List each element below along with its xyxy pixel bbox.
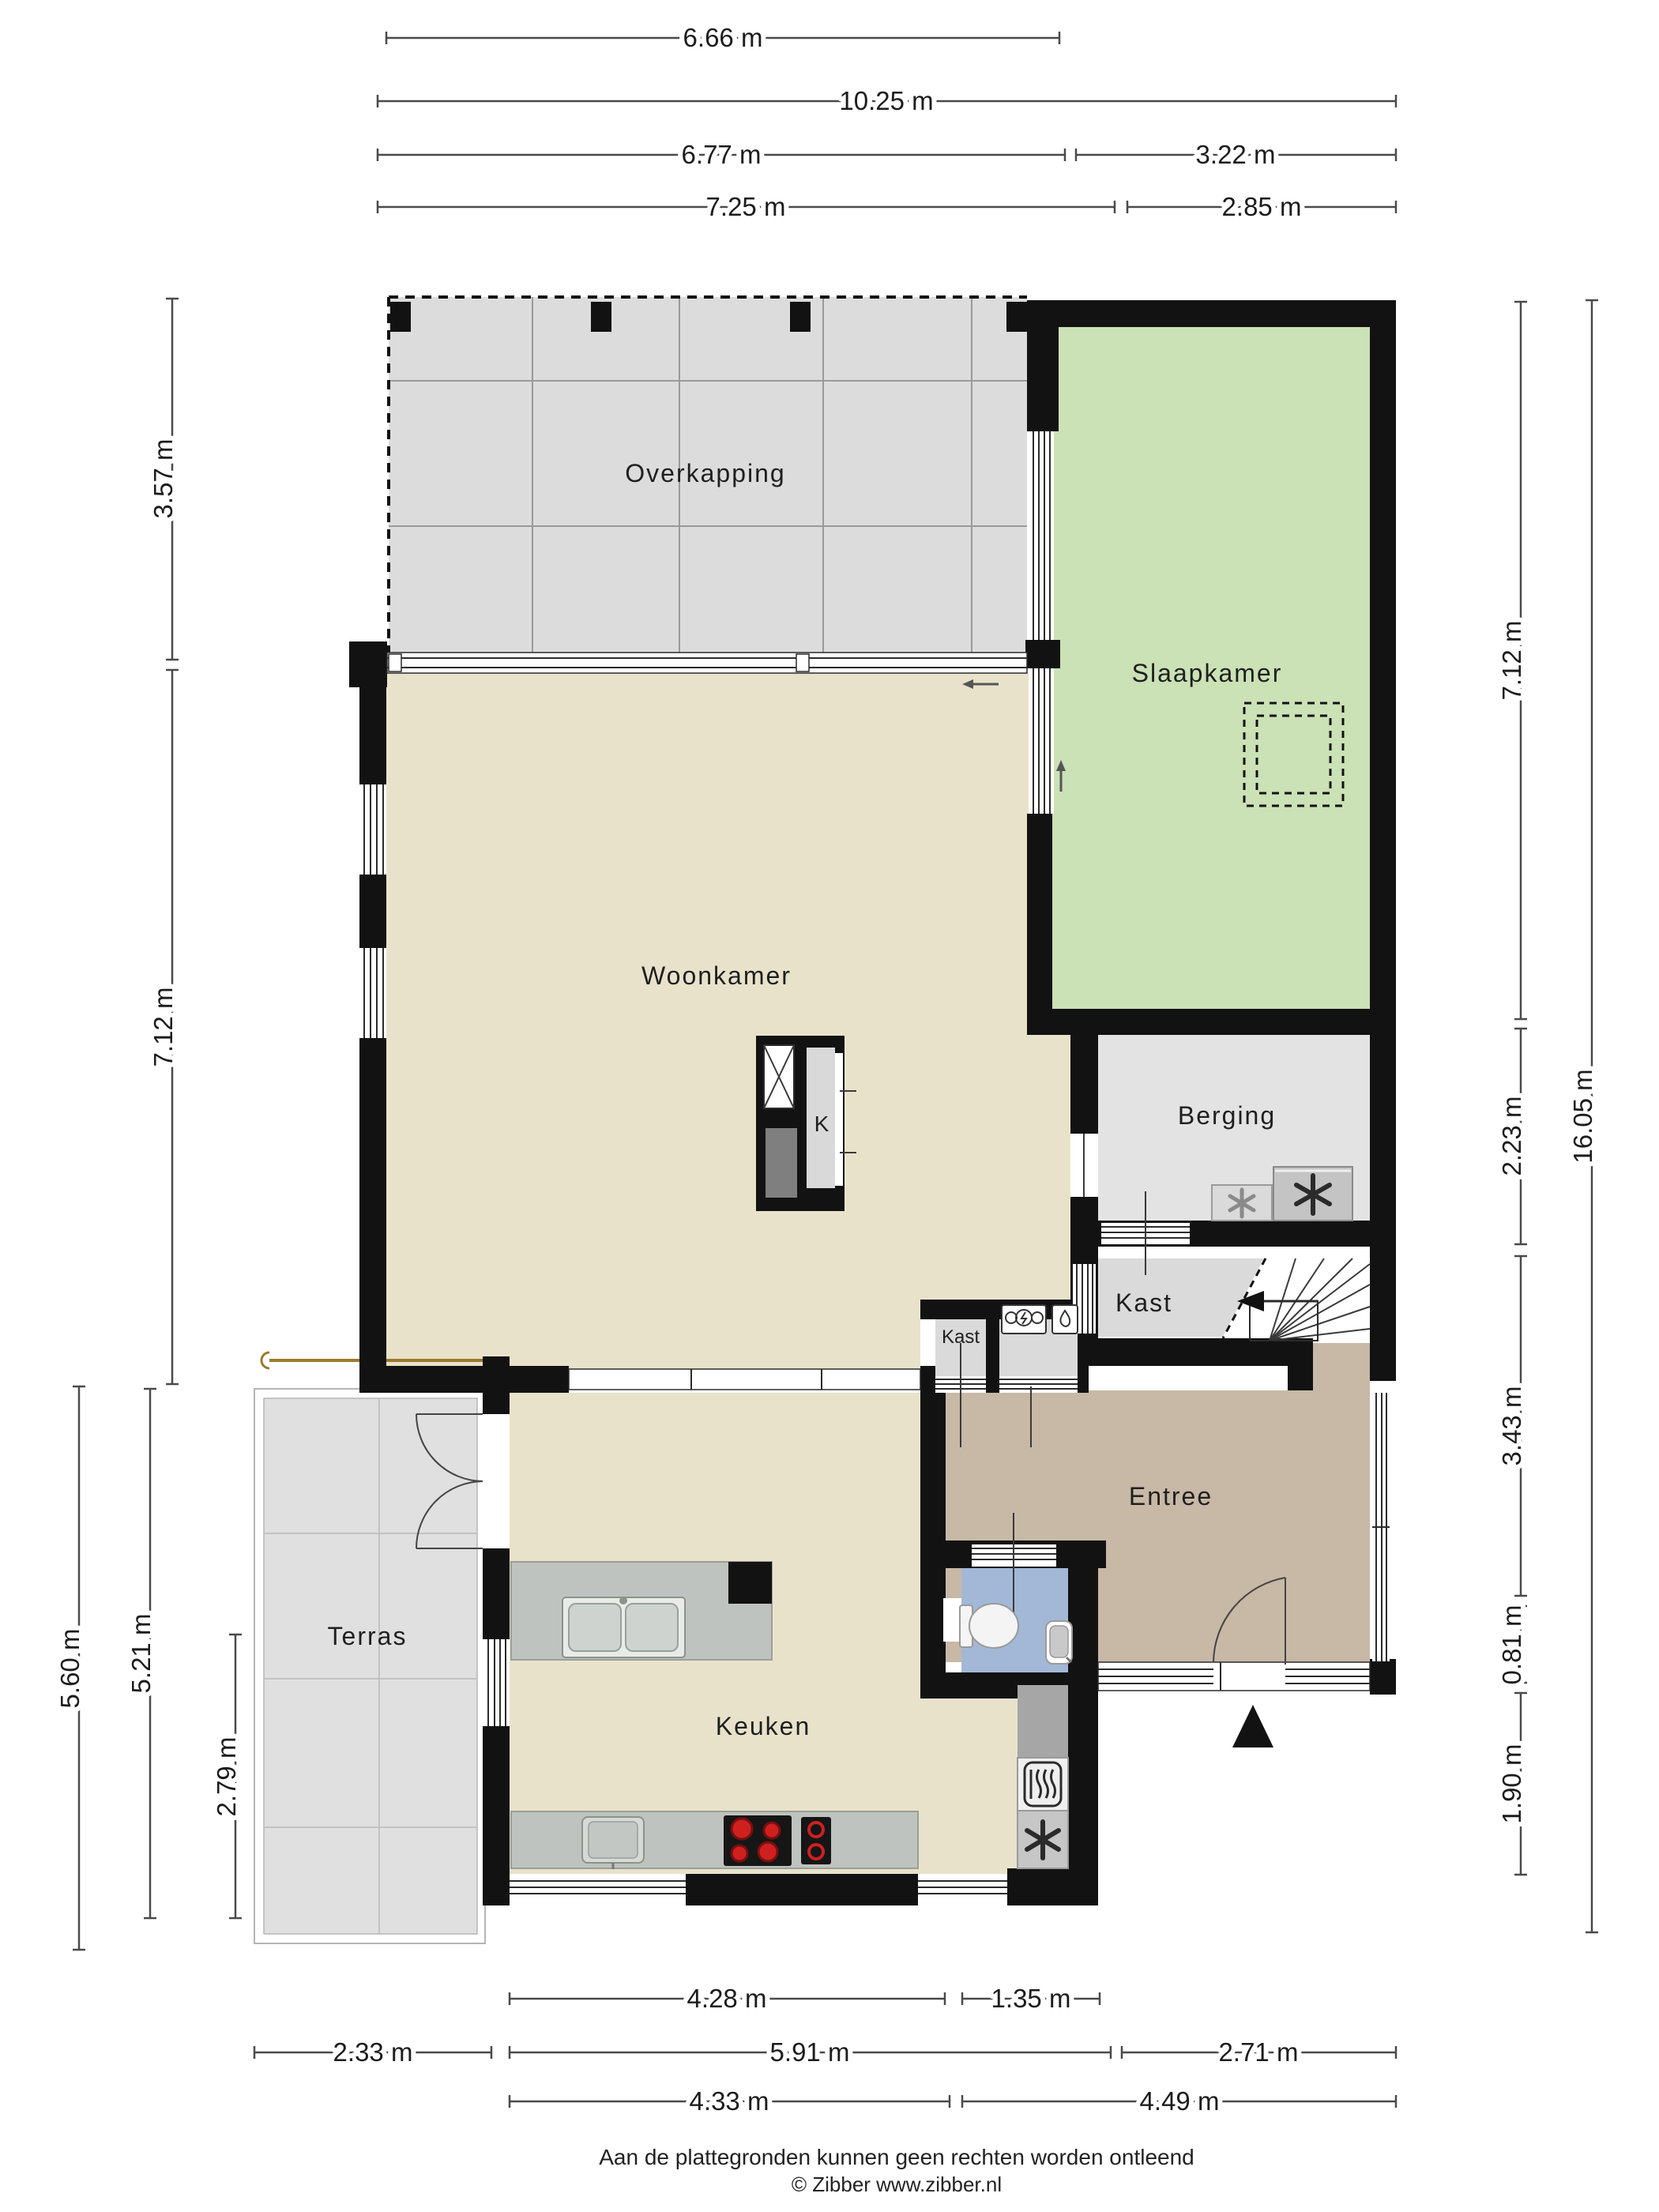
window <box>483 1639 510 1726</box>
label-kast-groot: Kast <box>1115 1288 1172 1317</box>
cooktop-icon <box>724 1815 792 1866</box>
duct-icon <box>766 1128 797 1198</box>
dimension-right-16-05: 16.05 m <box>1568 300 1598 1932</box>
double-sink-icon <box>562 1597 685 1657</box>
post-icon <box>1006 302 1027 332</box>
kitchen-island <box>511 1562 772 1660</box>
dimension-left-5-21: 5.21 m <box>126 1389 156 1918</box>
label-berging: Berging <box>1178 1101 1276 1130</box>
svg-text:4.49 m: 4.49 m <box>1140 2086 1220 2116</box>
window <box>510 1876 686 1900</box>
meter-electric-icon <box>1002 1305 1046 1334</box>
dimension-right-2-23: 2.23 m <box>1497 1029 1527 1244</box>
floorplan-drawing: 6.66 m 10.25 m 6.77 m 3.22 m 7.25 m 2.85… <box>0 0 1659 2212</box>
svg-text:2.23 m: 2.23 m <box>1497 1097 1526 1176</box>
opening-band <box>569 1369 920 1390</box>
dryer-icon <box>1273 1167 1352 1221</box>
label-slaapkamer: Slaapkamer <box>1132 659 1283 687</box>
k-block: K <box>756 1036 856 1211</box>
svg-text:5.60 m: 5.60 m <box>55 1629 85 1709</box>
window <box>918 1876 1007 1900</box>
dimension-bottom-5-91: 5.91 m <box>510 2037 1111 2067</box>
svg-text:5.21 m: 5.21 m <box>126 1614 156 1694</box>
svg-text:16.05 m: 16.05 m <box>1568 1069 1597 1163</box>
washer-icon <box>1212 1185 1272 1221</box>
post-icon <box>790 302 811 332</box>
svg-text:6.66 m: 6.66 m <box>683 23 763 52</box>
tall-cabinet-column <box>1018 1685 1068 1868</box>
svg-text:3.43 m: 3.43 m <box>1497 1386 1526 1466</box>
footer-disclaimer: Aan de plattegronden kunnen geen rechten… <box>599 2145 1194 2169</box>
svg-text:1.90 m: 1.90 m <box>1497 1744 1526 1824</box>
dimension-bottom-2-33: 2.33 m <box>254 2037 491 2067</box>
control-panel-icon <box>801 1817 831 1864</box>
prep-sink-icon <box>582 1817 644 1869</box>
svg-text:7.12 m: 7.12 m <box>1497 621 1526 701</box>
label-terras: Terras <box>328 1622 408 1650</box>
svg-text:0.81 m: 0.81 m <box>1497 1605 1526 1685</box>
svg-text:1.35 m: 1.35 m <box>991 1984 1071 2013</box>
dimension-left-3-57: 3.57 m <box>149 299 179 660</box>
dimension-top-6-77: 6.77 m <box>378 140 1065 169</box>
post-icon <box>390 302 411 332</box>
dimension-right-7-12: 7.12 m <box>1497 302 1527 1019</box>
dimension-left-2-79: 2.79 m <box>212 1635 242 1918</box>
label-kast-klein: Kast <box>942 1326 980 1348</box>
label-keuken: Keuken <box>716 1712 811 1740</box>
dimension-right-1-90: 1.90 m <box>1497 1693 1527 1875</box>
toilet-icon <box>960 1604 1018 1648</box>
svg-text:7.12 m: 7.12 m <box>149 987 178 1067</box>
sink-icon <box>1046 1621 1072 1664</box>
dimension-bottom-1-35: 1.35 m <box>962 1984 1100 2013</box>
dimension-top-2-85: 2.85 m <box>1127 192 1396 221</box>
entree-bottom-windows <box>1098 1662 1370 1691</box>
dimension-bottom-4-28: 4.28 m <box>510 1984 945 2013</box>
label-entree: Entree <box>1129 1482 1213 1510</box>
dimension-top-6-66: 6.66 m <box>386 23 1059 52</box>
svg-text:2.33 m: 2.33 m <box>333 2037 413 2067</box>
window <box>359 784 386 875</box>
svg-text:3.22 m: 3.22 m <box>1196 140 1276 169</box>
dimension-bottom-4-49: 4.49 m <box>962 2086 1396 2116</box>
label-woonkamer: Woonkamer <box>641 961 792 990</box>
room-woonkamer <box>386 673 1073 1369</box>
window <box>359 948 386 1038</box>
dimension-top-3-22: 3.22 m <box>1076 140 1396 169</box>
dimension-top-10-25: 10.25 m <box>378 86 1396 115</box>
svg-text:10.25 m: 10.25 m <box>839 86 933 115</box>
label-overkapping: Overkapping <box>625 459 785 487</box>
dimension-right-0-81: 0.81 m <box>1497 1605 1527 1685</box>
svg-text:6.77 m: 6.77 m <box>682 140 762 169</box>
floorplan-page: 6.66 m 10.25 m 6.77 m 3.22 m 7.25 m 2.85… <box>0 0 1659 2212</box>
svg-text:2.71 m: 2.71 m <box>1219 2037 1299 2067</box>
svg-text:5.91 m: 5.91 m <box>770 2037 850 2067</box>
svg-text:7.25 m: 7.25 m <box>706 192 786 221</box>
entrance-arrow-icon <box>1232 1705 1273 1747</box>
kitchen-counter <box>511 1811 918 1869</box>
window <box>1372 1393 1390 1661</box>
k-label: K <box>814 1112 829 1136</box>
dimension-left-5-60: 5.60 m <box>55 1386 85 1950</box>
window <box>1029 431 1054 640</box>
dimension-right-3-43: 3.43 m <box>1497 1256 1527 1596</box>
svg-text:2.79 m: 2.79 m <box>212 1737 241 1817</box>
svg-text:4.33 m: 4.33 m <box>690 2086 769 2116</box>
meter-water-icon <box>1052 1305 1078 1334</box>
dimension-top-7-25: 7.25 m <box>378 192 1115 221</box>
svg-text:3.57 m: 3.57 m <box>149 439 178 519</box>
svg-text:2.85 m: 2.85 m <box>1222 192 1302 221</box>
dimension-bottom-2-71: 2.71 m <box>1122 2037 1396 2067</box>
svg-text:4.28 m: 4.28 m <box>687 1984 767 2013</box>
post-icon <box>591 302 611 332</box>
dimension-left-7-12: 7.12 m <box>149 670 179 1384</box>
dimension-bottom-4-33: 4.33 m <box>510 2086 950 2116</box>
footer-credit: © Zibber www.zibber.nl <box>792 2172 1002 2196</box>
